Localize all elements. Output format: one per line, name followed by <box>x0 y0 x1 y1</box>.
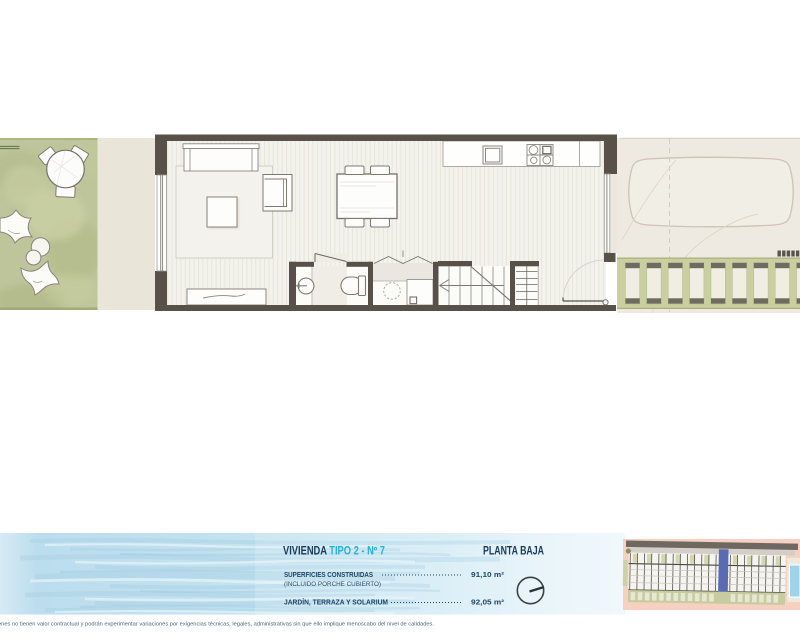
svg-text:SUPERFICIES CONSTRUIDAS: SUPERFICIES CONSTRUIDAS <box>284 570 373 579</box>
svg-text:(INCLUIDO PORCHE CUBIERTO): (INCLUIDO PORCHE CUBIERTO) <box>284 581 381 588</box>
svg-text:enes no tienen valor contractu: enes no tienen valor contractual y podrá… <box>0 622 434 628</box>
svg-text:92,05 m²: 92,05 m² <box>471 598 505 607</box>
svg-text:91,10 m²: 91,10 m² <box>471 570 505 579</box>
svg-text:VIVIENDA TIPO 2 - Nº 7: VIVIENDA TIPO 2 - Nº 7 <box>283 546 385 558</box>
svg-text:JARDÍN, TERRAZA Y SOLARIUM: JARDÍN, TERRAZA Y SOLARIUM <box>284 598 388 607</box>
svg-text:PLANTA BAJA: PLANTA BAJA <box>483 546 544 558</box>
